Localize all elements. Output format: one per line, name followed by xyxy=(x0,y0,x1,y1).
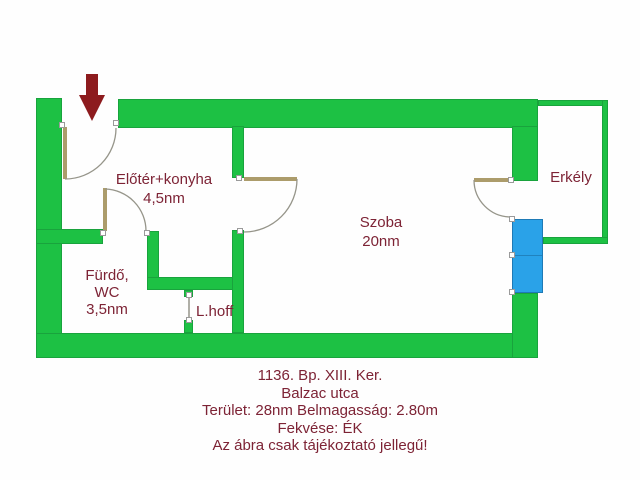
door-jamb xyxy=(509,216,515,222)
room-area: 4,5nm xyxy=(84,189,244,208)
door-jamb xyxy=(509,252,515,258)
floorplan: Előtér+konyha 4,5nm Szoba 20nm Erkély Fü… xyxy=(0,0,640,480)
door-jamb xyxy=(100,230,106,236)
room-door-arc xyxy=(244,179,297,232)
room-name: Előtér+konyha xyxy=(84,170,244,189)
listing-area-height: Terület: 28nm Belmagasság: 2.80m xyxy=(0,402,640,420)
room-label-living-room: Szoba 20nm xyxy=(301,213,461,251)
entrance-arrow-icon xyxy=(79,74,105,121)
room-label-entry-kitchen: Előtér+konyha 4,5nm xyxy=(84,170,244,208)
room-name: WC xyxy=(27,284,187,301)
listing-info: 1136. Bp. XIII. Ker. Balzac utca Terület… xyxy=(0,367,640,455)
listing-street: Balzac utca xyxy=(0,385,640,403)
door-jamb xyxy=(237,228,243,234)
room-area: 20nm xyxy=(301,232,461,251)
room-name: Erkély xyxy=(491,168,640,187)
door-jamb xyxy=(144,230,150,236)
room-name: Szoba xyxy=(301,213,461,232)
room-label-lightshaft: L.hoff xyxy=(196,302,233,321)
room-area: 3,5nm xyxy=(27,301,187,318)
door-jamb xyxy=(509,289,515,295)
listing-disclaimer: Az ábra csak tájékoztató jellegű! xyxy=(0,437,640,455)
room-label-bathroom: Fürdő, WC 3,5nm xyxy=(27,267,187,318)
listing-district: 1136. Bp. XIII. Ker. xyxy=(0,367,640,385)
door-jamb xyxy=(113,120,119,126)
room-name: Fürdő, xyxy=(27,267,187,284)
room-name: L.hoff xyxy=(196,302,233,321)
room-label-balcony: Erkély xyxy=(491,168,640,187)
listing-orientation: Fekvése: ÉK xyxy=(0,420,640,438)
door-jamb xyxy=(59,122,65,128)
